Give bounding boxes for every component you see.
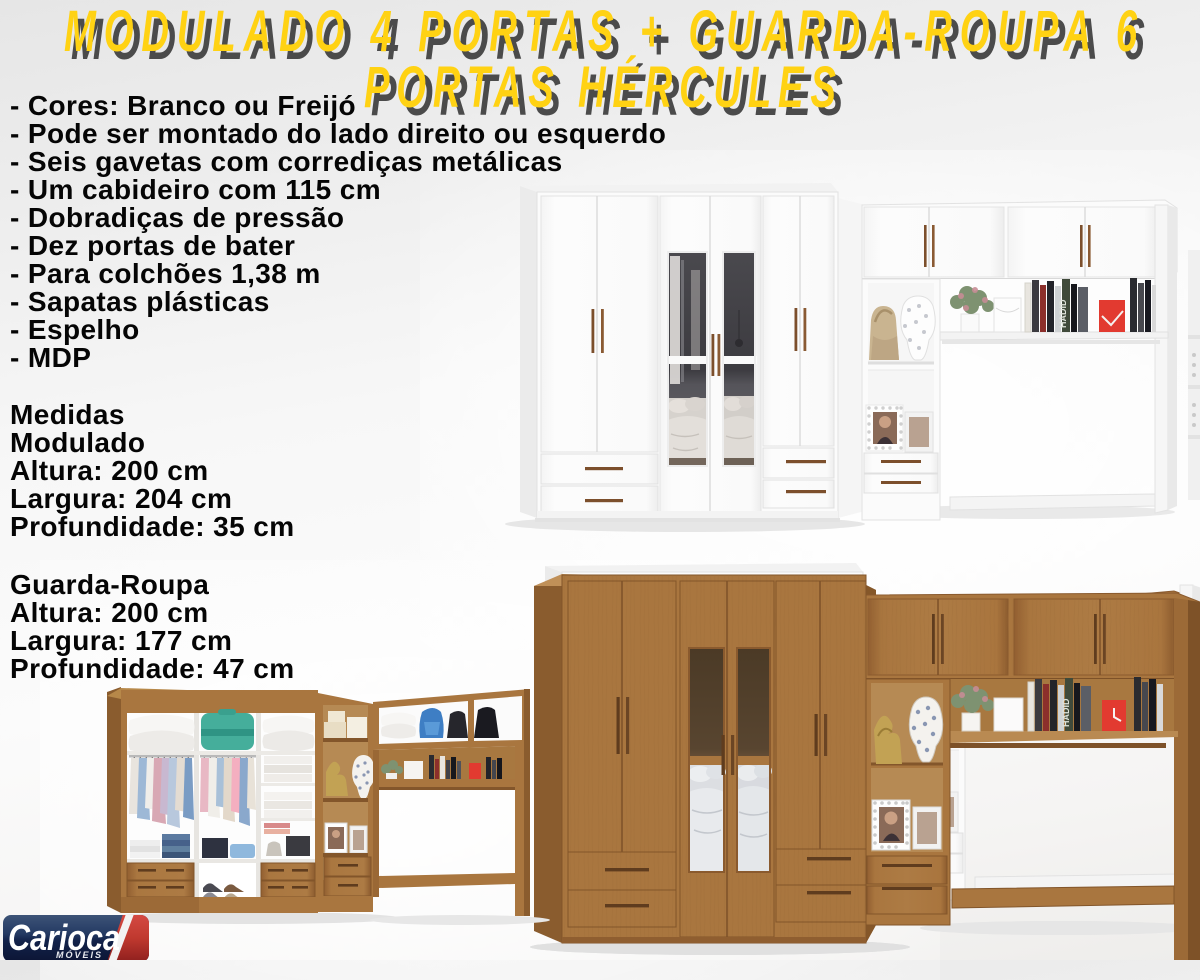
svg-text:MÓVEIS: MÓVEIS [56,949,103,960]
svg-text:HADID: HADID [1058,299,1068,328]
svg-text:MODULADO 4 PORTAS + GUARDA-ROU: MODULADO 4 PORTAS + GUARDA-ROUPA 6 [64,0,1138,64]
svg-text:HADID: HADID [1061,698,1071,727]
